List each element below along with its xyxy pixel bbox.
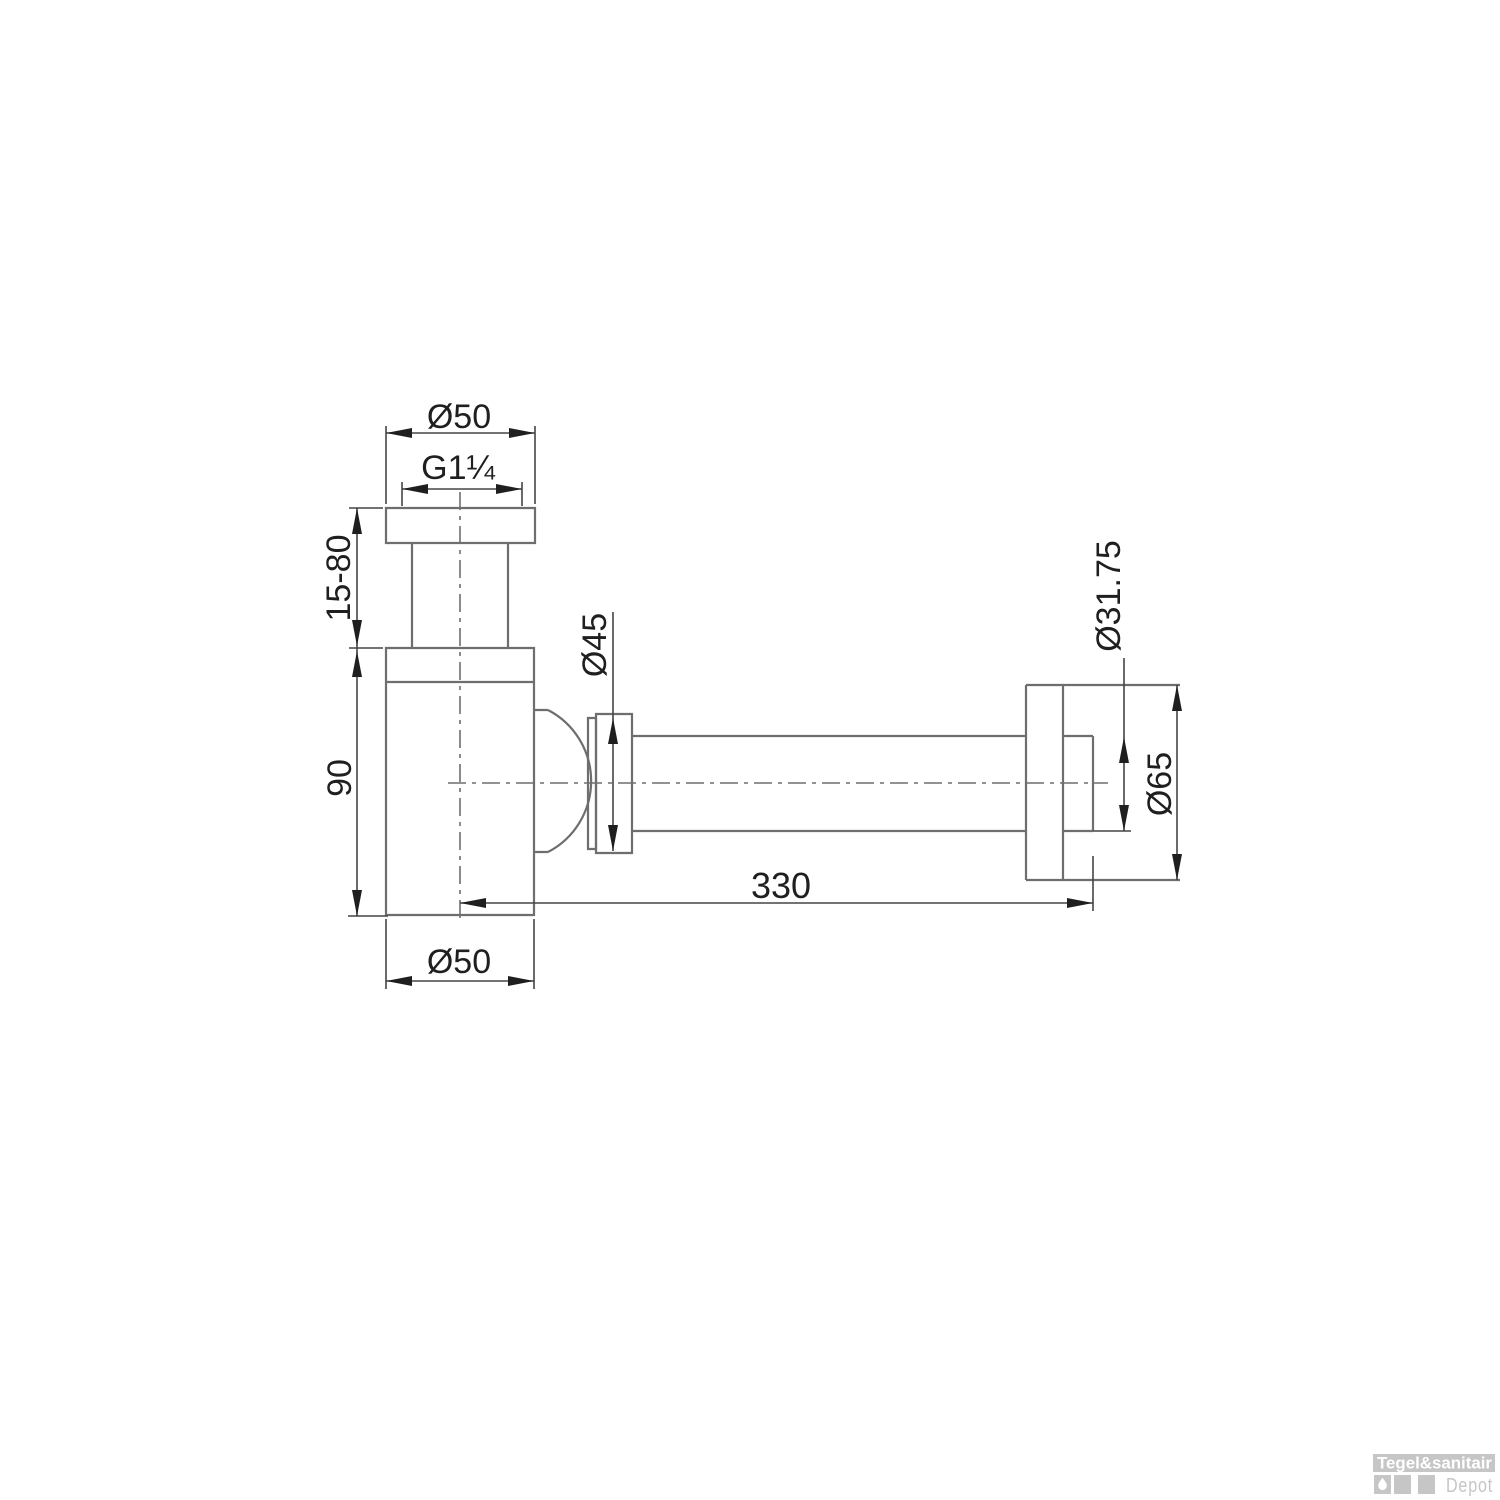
dim-body-diameter: Ø50 bbox=[386, 919, 534, 989]
arrow-up-icon bbox=[1119, 737, 1129, 763]
arrow-left-icon bbox=[386, 428, 412, 438]
arrow-down-icon bbox=[1119, 805, 1129, 831]
arrow-down-icon bbox=[608, 825, 618, 851]
outlet-step-lines bbox=[534, 710, 548, 852]
arrow-up-icon bbox=[608, 718, 618, 744]
outlet-dome-outline bbox=[548, 710, 591, 852]
watermark-square bbox=[1394, 1475, 1411, 1494]
arrow-right-icon bbox=[508, 976, 534, 986]
arrow-down-icon bbox=[1172, 854, 1182, 880]
dim-label-pipe-diameter: Ø31.75 bbox=[1090, 540, 1128, 652]
arrow-up-icon bbox=[1172, 685, 1182, 711]
watermark-depot-text: Depot bbox=[1446, 1475, 1493, 1497]
arrow-down-icon bbox=[352, 890, 362, 916]
centerlines bbox=[448, 492, 1108, 923]
watermark-square bbox=[1418, 1475, 1435, 1494]
arrow-right-icon bbox=[509, 428, 535, 438]
arrow-right-icon bbox=[496, 484, 522, 494]
dim-rosette-diameter: Ø65 bbox=[1141, 685, 1182, 880]
dim-thread-size: G1¼ bbox=[402, 449, 522, 506]
part-outlines bbox=[386, 508, 1180, 915]
dim-label-body-diameter: Ø50 bbox=[427, 943, 491, 981]
arrow-left-icon bbox=[386, 976, 412, 986]
arrow-up-icon bbox=[352, 508, 362, 534]
watermark: Tegel&sanitair Depot bbox=[1373, 1454, 1495, 1498]
dim-label-thread-size: G1¼ bbox=[421, 449, 495, 487]
dim-label-nut-diameter: Ø45 bbox=[576, 613, 614, 677]
dim-height-adjust: 15-80 bbox=[320, 508, 383, 648]
siphon-technical-drawing: Ø50 G1¼ 15-80 90 Ø50 Ø45 bbox=[0, 0, 1500, 1500]
technical-drawing-page: Ø50 G1¼ 15-80 90 Ø50 Ø45 bbox=[0, 0, 1500, 1500]
dim-pipe-length: 330 bbox=[460, 856, 1093, 911]
dim-label-pipe-length: 330 bbox=[751, 865, 811, 906]
arrow-right-icon bbox=[1067, 898, 1093, 908]
dim-label-top-diameter: Ø50 bbox=[427, 398, 491, 436]
dim-label-rosette-diameter: Ø65 bbox=[1141, 752, 1179, 816]
watermark-brand-text: Tegel&sanitair bbox=[1377, 1454, 1492, 1473]
arrow-down-icon bbox=[352, 620, 362, 646]
dim-label-body-height: 90 bbox=[321, 759, 359, 797]
arrow-left-icon bbox=[460, 898, 486, 908]
dim-body-height: 90 bbox=[321, 648, 388, 916]
dim-label-height-adjust: 15-80 bbox=[320, 535, 358, 622]
arrow-up-icon bbox=[352, 651, 362, 677]
